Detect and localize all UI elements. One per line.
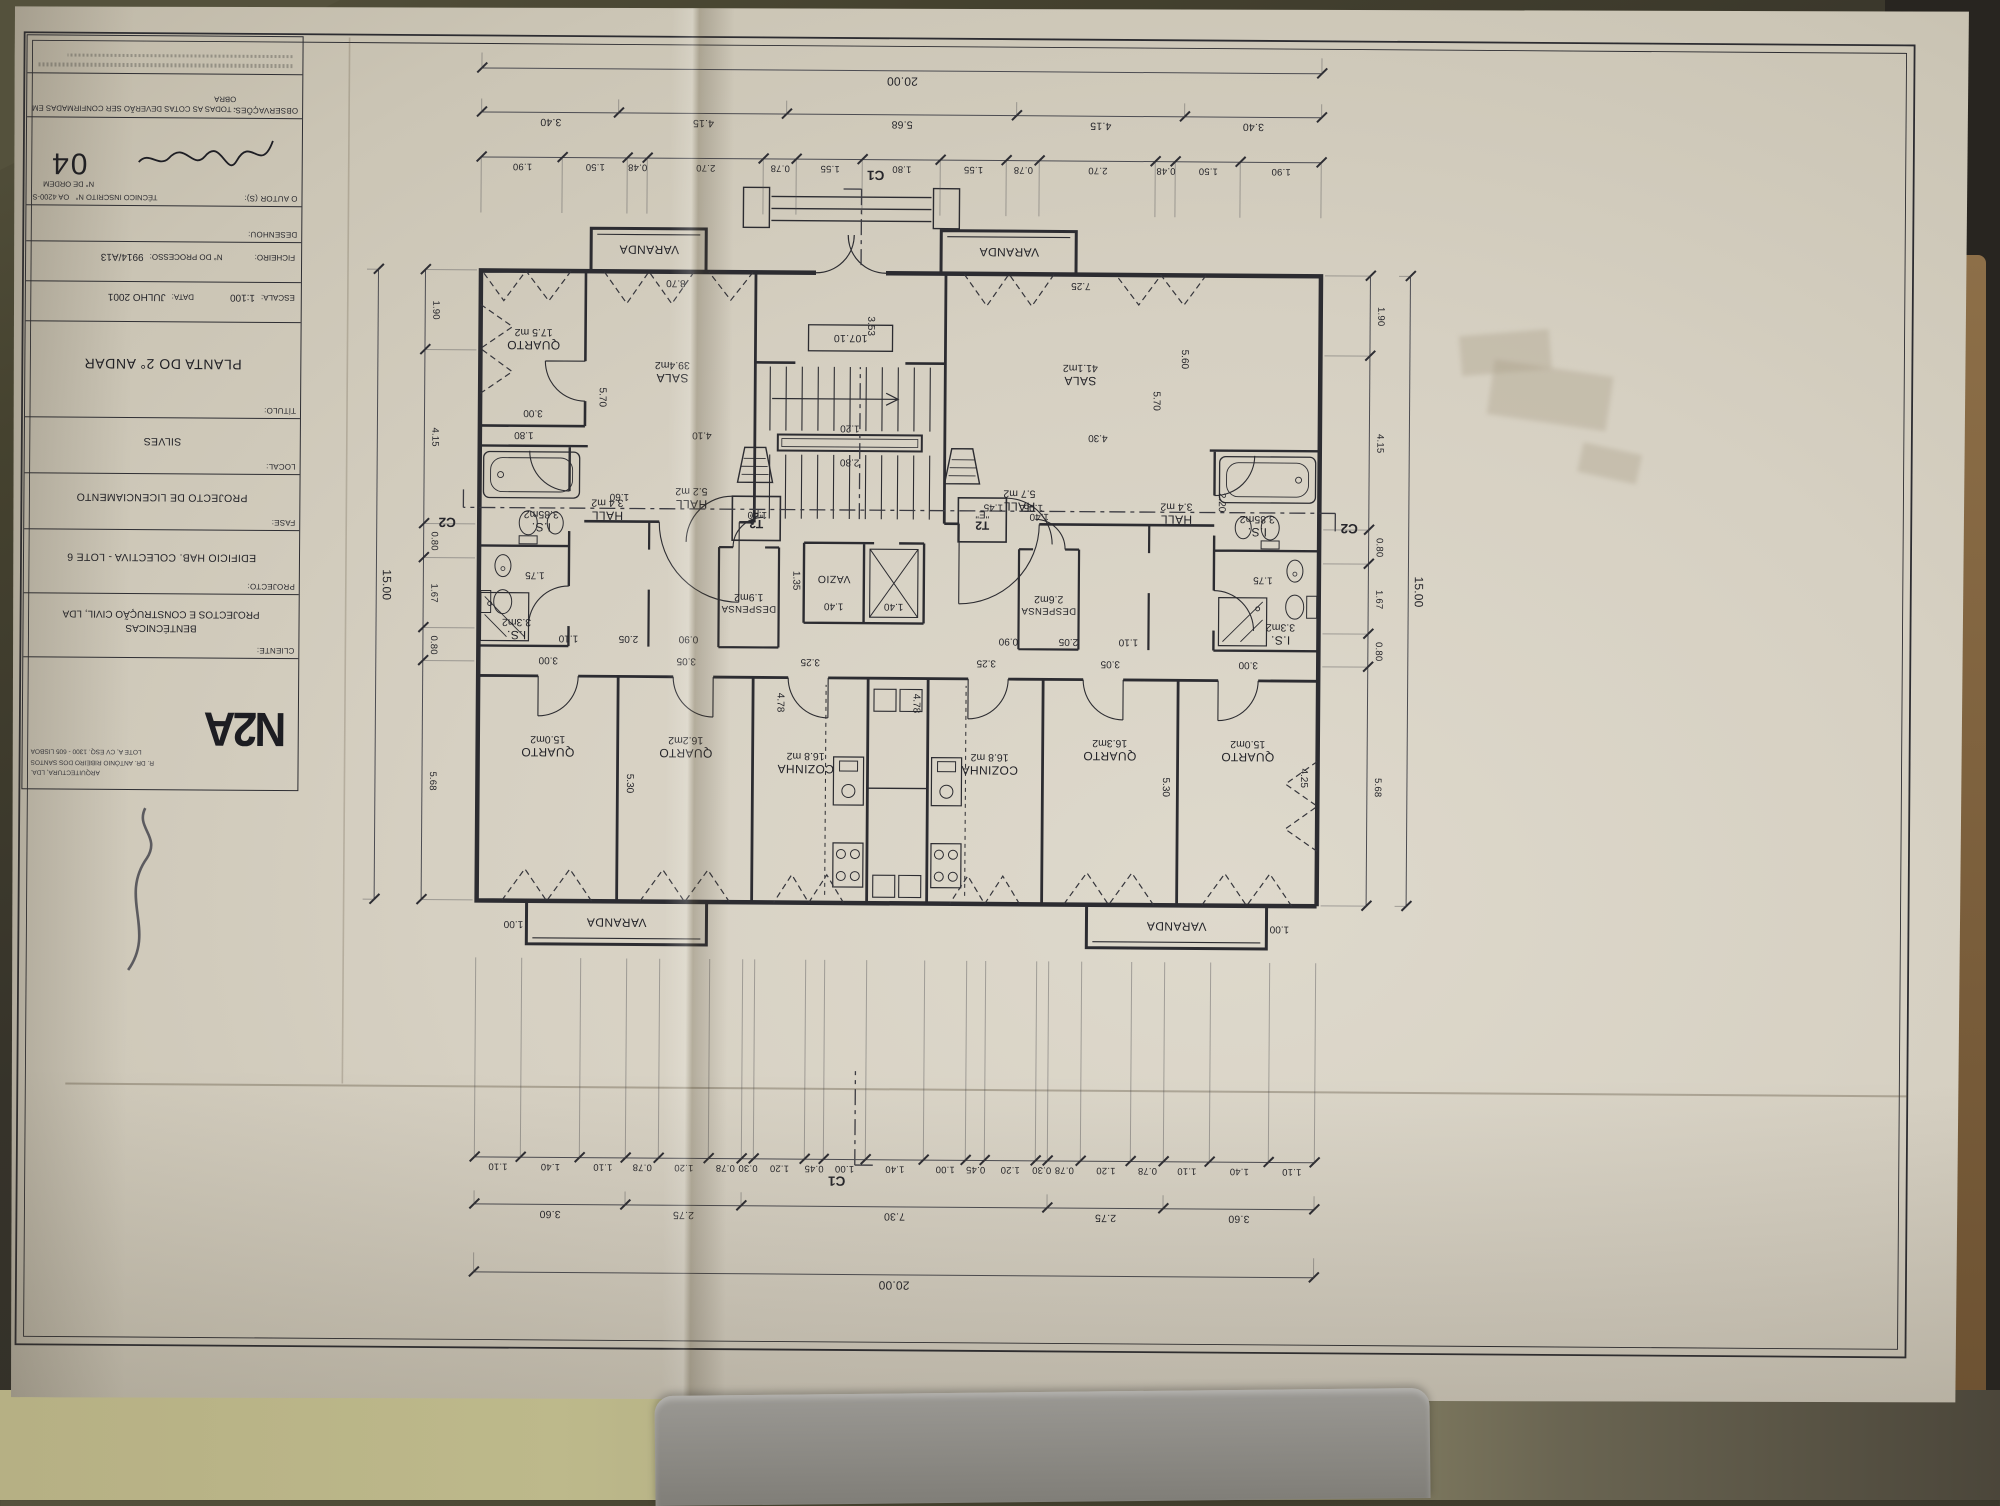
room-label-quarto2-right: QUARTO15.0m2: [521, 732, 574, 759]
title-block-titulo-row: TÍTULO: PLANTA DO 2° ANDAR: [25, 321, 301, 419]
title-block-escala-row: ESCALA: 1:100 DATA: JULHO 2001: [26, 281, 301, 323]
dim-label: 1.20: [840, 422, 860, 433]
dim-label: 4.78: [774, 693, 785, 713]
title-block-desenhou-row: DESENHOU:: [26, 205, 301, 243]
title-block-local-row: LOCAL: SILVES: [25, 417, 300, 475]
fine-print-line: [67, 54, 292, 59]
ordem-value: 04: [27, 145, 111, 180]
dim-label: 8.70: [666, 277, 686, 288]
escala-value: 1:100: [230, 292, 255, 303]
dim-label: 1.10: [559, 632, 579, 643]
dim-label: 5.60: [1179, 350, 1190, 370]
dim-label: 3.00: [523, 407, 543, 418]
dim-label: 1.75: [1253, 574, 1273, 585]
room-label-sala-right: SALA39.4m2: [655, 358, 690, 385]
unit-tag-t2-name: T2: [975, 519, 989, 532]
data-value: JULHO 2001: [108, 291, 166, 302]
dim-label: 3.25: [801, 656, 821, 667]
title-block-cliente-row: CLIENTE: BENTÉCNICAS PROJECTOS E CONSTRU…: [23, 593, 298, 659]
dim-label: 3.00: [1239, 659, 1259, 670]
firm-logo: N2A: [206, 665, 287, 757]
room-label-hall2-left: HALL3.4 m2: [1160, 500, 1192, 527]
ficheiro-label: FICHEIRO:: [255, 253, 296, 262]
room-label-despensa-left: DESPENSA2.6m2: [1021, 592, 1076, 616]
tecnico-value: OA 4200-S: [32, 192, 69, 201]
tecnico-label: TÉCNICO INSCRITO N°: [75, 193, 157, 203]
room-label-is1-right: I.S.3.85m2: [524, 507, 559, 534]
title-block-fase-row: FASE: PROJECTO DE LICENCIAMENTO: [24, 473, 299, 531]
dim-label: 2.20: [1216, 493, 1227, 513]
room-label-quarto3-right: QUARTO17.5 m2: [507, 325, 560, 352]
processo-label: N° DO PROCESSO:: [150, 252, 223, 262]
section-marker-c2: C2: [439, 515, 456, 530]
title-block-projecto-row: PROJECTO: EDIFICIO HAB. COLECTIVA - LOTE…: [24, 529, 299, 595]
room-label-quarto1-right: QUARTO16.2m2: [659, 733, 712, 760]
dim-label: 2.05: [619, 633, 639, 644]
desenhou-label: DESENHOU:: [248, 230, 297, 239]
dim-label: 3.05: [1101, 658, 1121, 669]
dim-label: 5.70: [1151, 391, 1162, 411]
unit-tag-t3-letter: "F": [749, 507, 763, 518]
observacoes-value: - TODAS AS COTAS DEVERÃO SER CONFIRMADAS…: [31, 92, 236, 114]
room-label-varanda-bottom-right: VARANDA: [619, 242, 679, 257]
section-marker-c1: C1: [867, 168, 884, 183]
dim-label: 1.00: [504, 918, 524, 929]
title-block-logo-row: N2A ARQUITECTURA, LDA. R. DR. ANTÓNIO RI…: [22, 657, 298, 790]
stove-right: [833, 843, 863, 887]
drawing-sheet: 1.101.401.100.781.200.780.301.200.451.00…: [5, 0, 1973, 1411]
stove-left: [931, 844, 961, 888]
fine-print-line: [37, 63, 292, 68]
room-label-cozinha-right: COZINHA16.8 m2: [777, 749, 834, 776]
room-label-varanda-top-left: VARANDA: [1146, 919, 1206, 934]
section-marker-c2: C2: [1341, 521, 1358, 536]
room-label-hall-left: HALL5.7 m2: [1003, 487, 1035, 514]
room-label-hall2-right: HALL3.4 m2: [591, 496, 623, 523]
bidet-right: [495, 555, 511, 577]
observacoes-label: OBSERVAÇÕES:: [233, 106, 298, 115]
cliente-value-2: PROJECTOS E CONSTRUÇÃO CIVIL, LDA: [63, 607, 260, 622]
ordem-label: N° DE ORDEM: [27, 179, 111, 189]
dim-label: 1.40: [884, 601, 904, 612]
stair-direction-arrow: [772, 392, 898, 405]
projecto-value: EDIFICIO HAB. COLECTIVA - LOTE 6: [67, 551, 256, 564]
dim-label: 5.30: [1160, 777, 1171, 797]
fireplace-left: [945, 449, 980, 484]
dim-label: 3.00: [539, 654, 559, 665]
unit-tag-t3: T3 "F": [749, 507, 763, 530]
dim-label: 5.70: [597, 388, 608, 408]
dim-label: 4.25: [1298, 768, 1309, 788]
foreground-object: [654, 1388, 1430, 1506]
data-label: DATA:: [172, 292, 194, 301]
dim-label: 0.90: [679, 633, 699, 644]
unit-tag-t2: T2 "E": [975, 508, 989, 531]
room-label-despensa-right: DESPENSA1.9m2: [721, 590, 776, 614]
firm-name: ARQUITECTURA, LDA.: [30, 766, 153, 777]
room-label-hall-right: HALL5.2 m2: [675, 485, 707, 512]
dim-label: 1.35: [790, 571, 801, 591]
firm-address-1: R. DR. ANTÓNIO RIBEIRO DOS SANTOS: [31, 756, 154, 767]
dim-label: 2.05: [1059, 636, 1079, 647]
processo-value: 9914/A13: [101, 251, 144, 262]
title-block-fineprint-row: [27, 33, 302, 75]
room-label-quarto1-left: QUARTO16.3m2: [1083, 736, 1136, 763]
room-label-is1-left: I.S.3.85m2: [1240, 512, 1275, 539]
title-block-autor-row: O AUTOR (S): TÉCNICO INSCRITO N° OA 4200…: [26, 117, 302, 207]
autor-label: O AUTOR (S):: [244, 194, 297, 203]
author-signature: [111, 118, 303, 192]
dim-label: 3.05: [677, 655, 697, 666]
dim-label: 3.25: [977, 657, 997, 668]
local-value: SILVES: [143, 436, 181, 448]
entry-door-arcs: [816, 235, 886, 273]
room-label-varanda-bottom-left: VARANDA: [979, 245, 1039, 260]
dim-label: 0.90: [999, 636, 1019, 647]
room-label-varanda-top-right: VARANDA: [586, 915, 646, 930]
dim-label: 4.30: [1088, 432, 1108, 443]
dim-label: 2.80: [840, 456, 860, 467]
room-label-is2-left: I.S.3.3m2: [1266, 621, 1295, 648]
dim-label: 1.40: [824, 600, 844, 611]
room-label-quarto2-left: QUARTO15.0m2: [1221, 737, 1274, 764]
stair-handrail: [778, 435, 922, 452]
dim-label: 1.00: [1270, 923, 1290, 934]
titulo-value: PLANTA DO 2° ANDAR: [84, 356, 242, 373]
window-marks: [477, 270, 1321, 906]
dim-label: 5.30: [624, 774, 635, 794]
escala-label: ESCALA:: [261, 293, 295, 302]
entry-steps: [771, 196, 931, 221]
room-label-vazio: VAZIO: [817, 573, 850, 585]
cliente-value-1: BENTÉCNICAS: [62, 620, 259, 635]
firm-address-2: LOTE A, CV ESQ. 1300 - 605 LISBOA: [31, 745, 154, 756]
balcony-walls: [526, 228, 1271, 949]
title-block-ficheiro-row: FICHEIRO: N° DO PROCESSO: 9914/A13: [26, 241, 301, 283]
room-label-is2-right: I.S.3.3m2: [502, 615, 531, 642]
room-label-sala-left: SALA41.1m2: [1063, 361, 1098, 388]
fase-value: PROJECTO DE LICENCIAMENTO: [76, 491, 247, 504]
room-label-cozinha-left: COZINHA16.8 m2: [961, 751, 1018, 778]
dim-label: 4.78: [910, 694, 921, 714]
unit-tag-t3-name: T3: [749, 517, 763, 530]
unit-tag-t2-letter: "E": [975, 508, 989, 519]
pen-mark: [128, 808, 151, 970]
title-block-observacoes-row: OBSERVAÇÕES: - TODAS AS COTAS DEVERÃO SE…: [27, 73, 302, 119]
level-marker: 107.10: [834, 332, 868, 344]
dim-label: 4.10: [692, 429, 712, 440]
dim-label: 1.75: [525, 569, 545, 580]
dim-label: 1.80: [514, 429, 534, 440]
door-arcs: [528, 361, 1260, 721]
dim-label: 1.10: [1119, 636, 1139, 647]
bleed-through-mark: [1459, 329, 1552, 376]
duct-vent: [899, 875, 921, 897]
toilet-left: [1307, 596, 1317, 618]
title-block: N2A ARQUITECTURA, LDA. R. DR. ANTÓNIO RI…: [21, 34, 303, 791]
dim-label: 7.25: [1071, 280, 1091, 291]
bidet-left: [1287, 560, 1303, 582]
outer-walls: [477, 270, 1321, 906]
section-marker-c1: C1: [828, 1173, 845, 1188]
